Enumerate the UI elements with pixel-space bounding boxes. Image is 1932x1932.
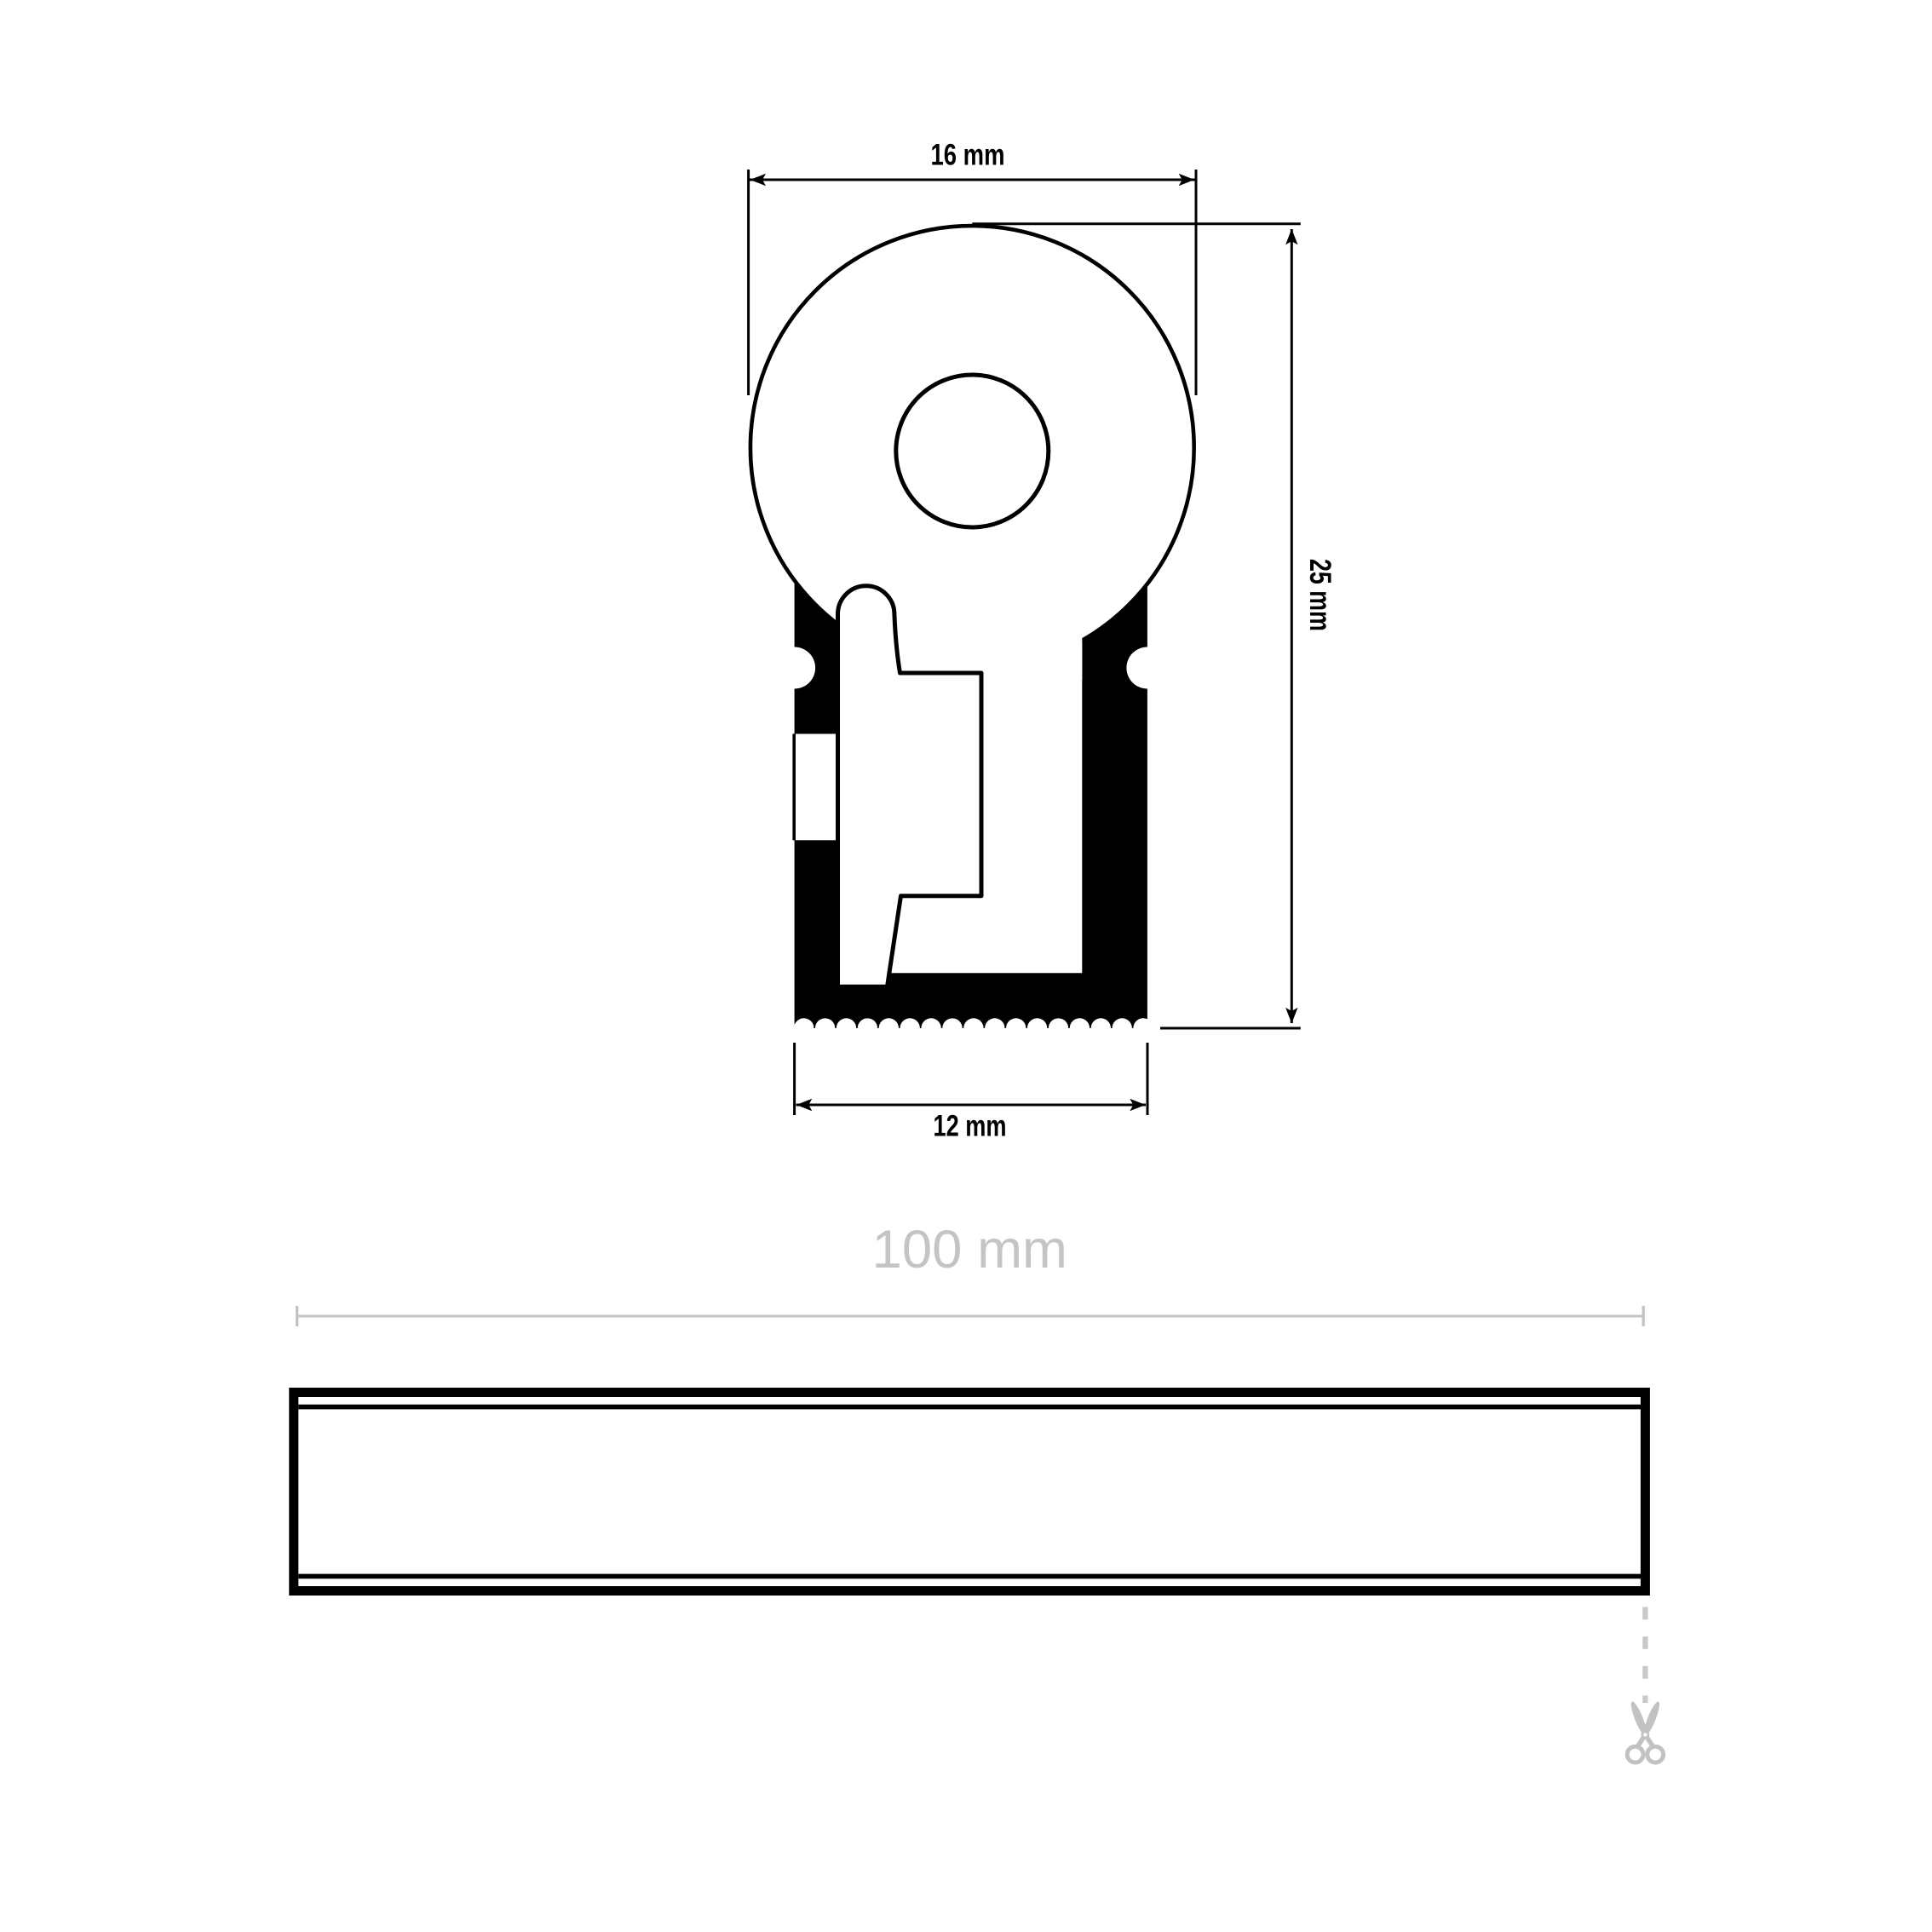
svg-text:12 mm: 12 mm — [934, 1109, 1007, 1142]
svg-text:16 mm: 16 mm — [931, 139, 1005, 172]
svg-text:100 mm: 100 mm — [872, 1220, 1067, 1279]
svg-text:25 mm: 25 mm — [1303, 559, 1337, 631]
